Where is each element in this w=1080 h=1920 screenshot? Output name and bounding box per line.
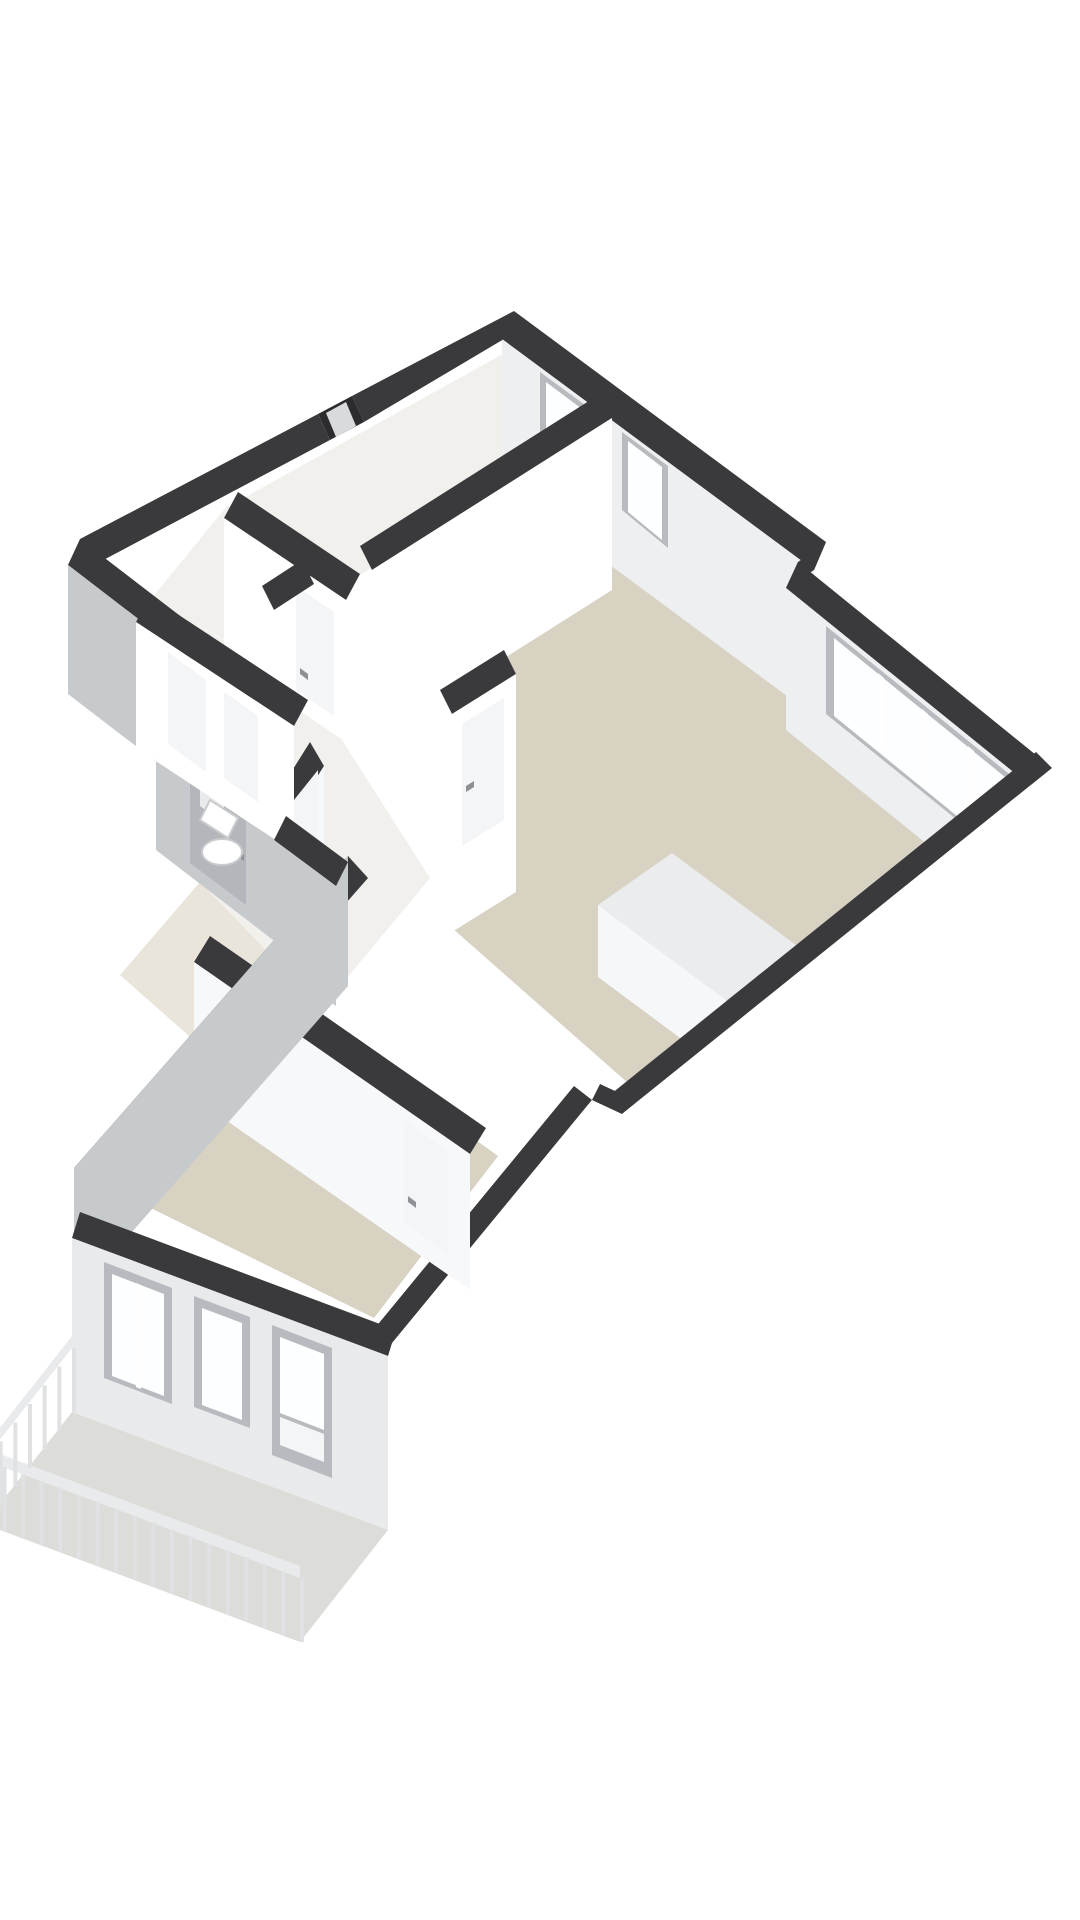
balcony-railing-post [77,1495,81,1559]
balcony-railing-post [207,1543,211,1607]
balcony-railing-post [263,1564,267,1628]
living-4pane-mullion-2 [922,709,928,790]
balcony-railing-post [43,1385,47,1449]
toilet-bowl [202,839,242,865]
balcony-railing-post [188,1536,192,1600]
balcony-railing-post [58,1488,62,1552]
balcony-railing-post [21,1474,25,1538]
balcony-railing-post [72,1348,76,1412]
living-door-leaf [462,698,504,846]
living-4pane-mullion-1 [878,673,884,754]
balcony-railing-post [300,1578,304,1642]
balcony-railing-post [0,1441,3,1505]
balcony-railing-post [281,1571,285,1635]
balcony-railing-post [28,1404,32,1468]
balcony-railing-post [244,1557,248,1621]
balcony-railing-post [96,1502,100,1566]
floorplan-3d-render [0,0,1080,1920]
balcony-railing-post [226,1550,230,1614]
balcony-railing-post [133,1516,137,1580]
floorplan-page [0,0,1080,1920]
balcony-railing-post [114,1509,118,1573]
bedroom2-window2-glass [202,1308,242,1420]
balcony-railing-post [151,1522,155,1586]
balcony-railing-post [57,1367,61,1431]
balcony-railing-post [3,1467,7,1531]
balcony-railing-post [13,1423,17,1487]
balcony-railing-post [40,1481,44,1545]
balcony-railing-post [170,1529,174,1593]
bedroom2-window1-mullion [136,1283,141,1389]
